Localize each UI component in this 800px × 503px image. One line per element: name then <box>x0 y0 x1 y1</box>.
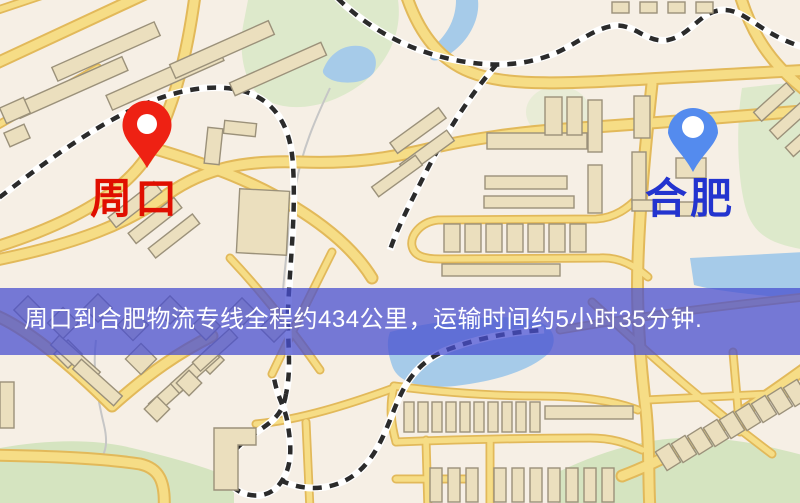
destination-pin-hole <box>682 116 704 138</box>
origin-pin-hole <box>137 114 157 134</box>
route-info-banner: 周口到合肥物流专线全程约434公里，运输时间约5小时35分钟. <box>0 288 800 355</box>
destination-city-label: 合肥 <box>645 178 735 220</box>
map-canvas <box>0 0 800 503</box>
route-info-text: 周口到合肥物流专线全程约434公里，运输时间约5小时35分钟. <box>24 306 702 335</box>
logistics-route-map: 周口到合肥物流专线全程约434公里，运输时间约5小时35分钟. 周口 合肥 <box>0 0 800 503</box>
origin-city-label: 周口 <box>90 178 180 220</box>
road-fills <box>0 0 800 503</box>
